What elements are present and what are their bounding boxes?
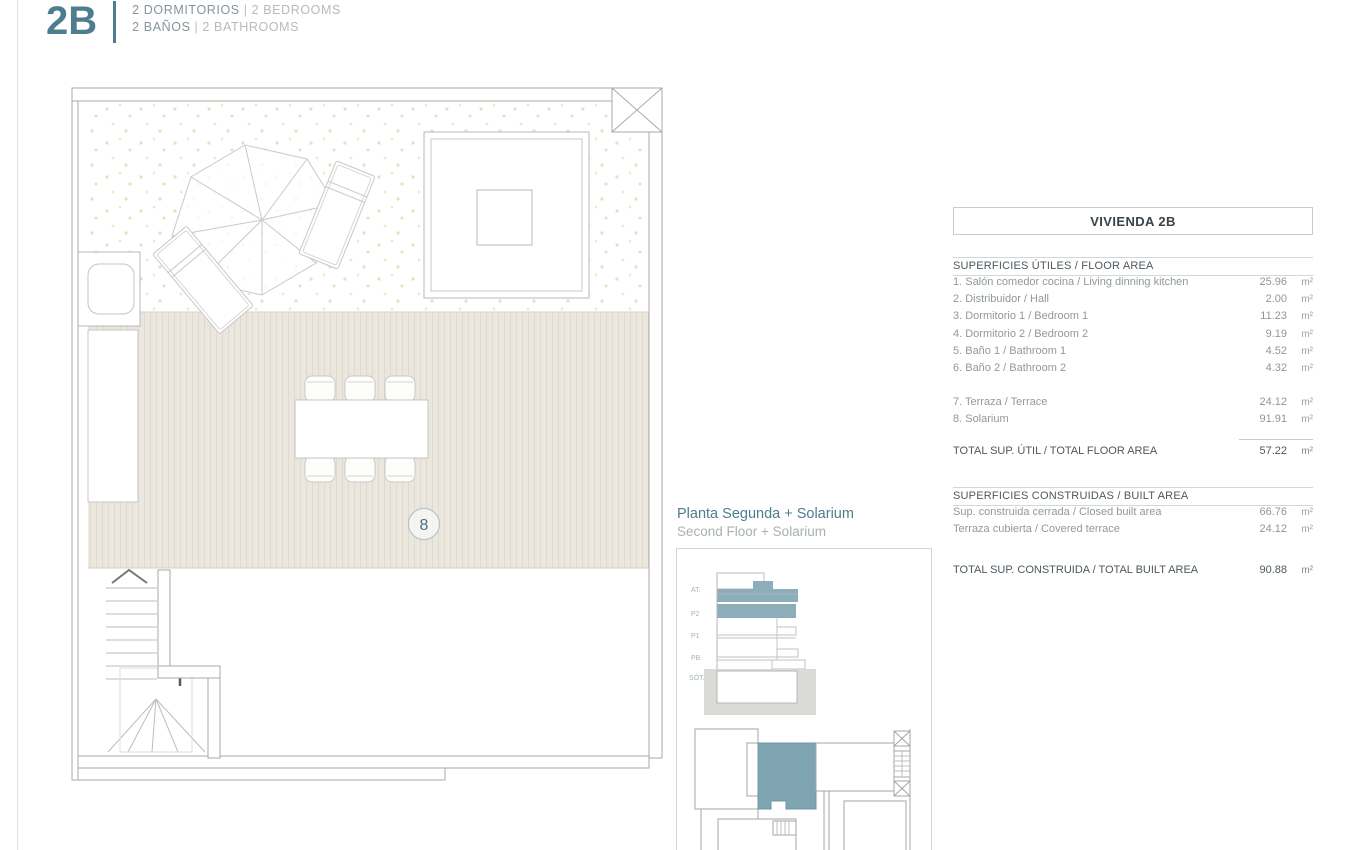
- floor-label: Planta Segunda + Solarium Second Floor +…: [677, 505, 854, 541]
- total-floor-area-row: TOTAL SUP. ÚTIL / TOTAL FLOOR AREA 57.22…: [953, 439, 1313, 457]
- area-row: 7. Terraza / Terrace 24.12 m²: [953, 396, 1313, 413]
- staircase: [106, 570, 205, 752]
- location-panel: AT. P2 P1 PB SÓT.: [676, 548, 932, 850]
- page-left-rule: [17, 0, 18, 850]
- total-built-area-row: TOTAL SUP. CONSTRUIDA / TOTAL BUILT AREA…: [953, 564, 1313, 576]
- useful-areas-heading: SUPERFICIES ÚTILES / FLOOR AREA: [953, 257, 1313, 276]
- key-plan: [695, 729, 910, 850]
- area-row: 5. Baño 1 / Bathroom 1 4.52 m²: [953, 345, 1313, 362]
- area-row: Sup. construida cerrada / Closed built a…: [953, 506, 1313, 523]
- skylight: [424, 132, 589, 298]
- level-label-at: AT.: [691, 587, 701, 594]
- areas-title: VIVIENDA 2B: [953, 207, 1313, 235]
- left-bench: [88, 330, 138, 502]
- floor-plan-drawing: 8: [65, 82, 670, 788]
- floorplan-sheet: 2B 2 DORMITORIOS|2 BEDROOMS 2 BAÑOS|2 BA…: [0, 0, 1360, 850]
- room-number-8: 8: [409, 509, 440, 540]
- area-row: 4. Dormitorio 2 / Bedroom 2 9.19 m²: [953, 328, 1313, 345]
- area-row: 2. Distribuidor / Hall 2.00 m²: [953, 293, 1313, 310]
- dining-set: [295, 376, 428, 482]
- dining-table: [295, 400, 428, 458]
- area-row: 1. Salón comedor cocina / Living dinning…: [953, 276, 1313, 293]
- bathrooms-line: 2 BAÑOS|2 BATHROOMS: [132, 19, 341, 36]
- unit-header: 2B 2 DORMITORIOS|2 BEDROOMS 2 BAÑOS|2 BA…: [46, 0, 341, 43]
- area-row: Terraza cubierta / Covered terrace 24.12…: [953, 523, 1313, 540]
- area-row: 3. Dormitorio 1 / Bedroom 1 11.23 m²: [953, 310, 1313, 327]
- level-label-p2: P2: [691, 611, 700, 618]
- key-plan-unit-highlight: [758, 743, 816, 809]
- left-planter: [78, 252, 140, 326]
- room-number-label: 8: [420, 517, 429, 534]
- level-label-p1: P1: [691, 633, 700, 640]
- floor-label-es: Planta Segunda + Solarium: [677, 505, 854, 523]
- built-areas-heading: SUPERFICIES CONSTRUIDAS / BUILT AREA: [953, 487, 1313, 506]
- bedrooms-line: 2 DORMITORIOS|2 BEDROOMS: [132, 2, 341, 19]
- level-label-sot: SÓT.: [689, 673, 705, 682]
- header-divider: [113, 1, 116, 43]
- level-label-pb: PB: [691, 655, 701, 662]
- unit-description: 2 DORMITORIOS|2 BEDROOMS 2 BAÑOS|2 BATHR…: [132, 0, 341, 36]
- main-floor-plan: 8: [65, 82, 670, 788]
- unit-code: 2B: [46, 0, 97, 42]
- building-section: AT. P2 P1 PB SÓT.: [689, 573, 816, 715]
- areas-panel: VIVIENDA 2B SUPERFICIES ÚTILES / FLOOR A…: [953, 207, 1313, 576]
- area-row: 6. Baño 2 / Bathroom 2 4.32 m²: [953, 362, 1313, 379]
- floor-label-en: Second Floor + Solarium: [677, 523, 854, 541]
- area-row: 8. Solarium 91.91 m²: [953, 413, 1313, 430]
- section-and-keyplan: AT. P2 P1 PB SÓT.: [677, 549, 931, 850]
